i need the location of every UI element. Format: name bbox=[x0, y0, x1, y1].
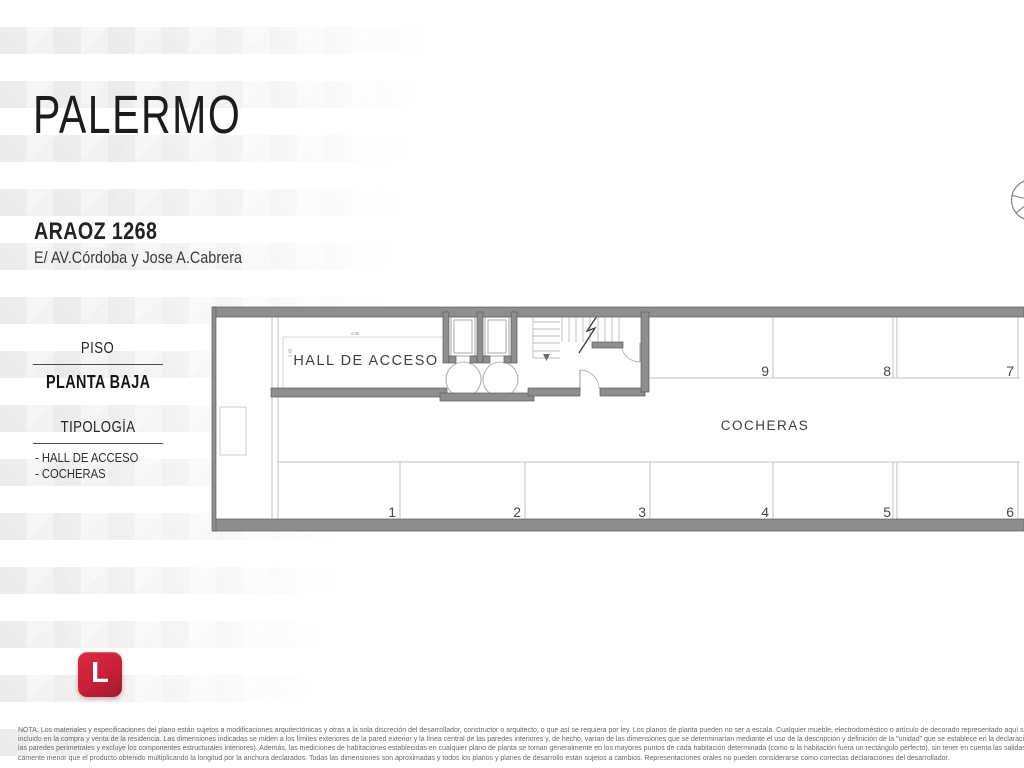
parking-space-number: 8 bbox=[883, 363, 891, 379]
parking-space-number: 7 bbox=[1006, 363, 1014, 379]
divider bbox=[33, 443, 163, 444]
legal-note-line: camente menor que el producto obtenido m… bbox=[18, 754, 1024, 763]
parking-space-number: 2 bbox=[513, 504, 521, 520]
city-name: PALERMO bbox=[33, 88, 241, 142]
typology-item: - COCHERAS bbox=[35, 467, 166, 483]
dimension-width-label: 4.95 bbox=[351, 331, 360, 336]
north-compass-icon bbox=[1002, 172, 1024, 232]
parking-space-number: 4 bbox=[761, 504, 769, 520]
brand-logo: L bbox=[78, 652, 122, 697]
round-column bbox=[483, 362, 518, 397]
legal-note-line: NOTA: Los materiales y especificaciones … bbox=[18, 726, 1024, 735]
floor-value: PLANTA BAJA bbox=[30, 372, 166, 393]
dimension-height-label: 2.45 bbox=[288, 348, 293, 357]
parking-space-number: 5 bbox=[883, 504, 891, 520]
typology-item: - HALL DE ACCESO bbox=[35, 451, 166, 467]
typology-label: TIPOLOGÍA bbox=[30, 419, 166, 437]
hall-label: HALL DE ACCESO bbox=[293, 353, 438, 369]
parking-space-number: 1 bbox=[388, 504, 396, 520]
parking-space-number: 9 bbox=[761, 363, 769, 379]
legal-note-line: las paredes perimetrales y excluye los c… bbox=[18, 744, 1024, 753]
garage-label: COCHERAS bbox=[721, 418, 810, 433]
floor-label: PISO bbox=[30, 340, 166, 358]
page-title: PALERMO bbox=[33, 88, 307, 142]
legal-note-line: incluido en la compra y venta de la resi… bbox=[18, 735, 1024, 744]
legal-note: NOTA: Los materiales y especificaciones … bbox=[18, 726, 1024, 763]
parking-space-number: 6 bbox=[1006, 504, 1014, 520]
brand-logo-letter: L bbox=[91, 659, 109, 688]
plan-interior bbox=[213, 307, 1024, 531]
typology-list: - HALL DE ACCESO - COCHERAS bbox=[30, 451, 166, 482]
round-column bbox=[446, 362, 481, 397]
divider bbox=[33, 364, 163, 365]
plan-info-panel: PISO PLANTA BAJA TIPOLOGÍA - HALL DE ACC… bbox=[30, 340, 166, 482]
project-cross-streets: E/ AV.Córdoba y Jose A.Cabrera bbox=[34, 248, 279, 268]
parking-space-number: 3 bbox=[638, 504, 646, 520]
project-address: ARAOZ 1268 bbox=[34, 218, 184, 246]
floor-plan: 4.95 2.45 bbox=[210, 300, 1024, 540]
